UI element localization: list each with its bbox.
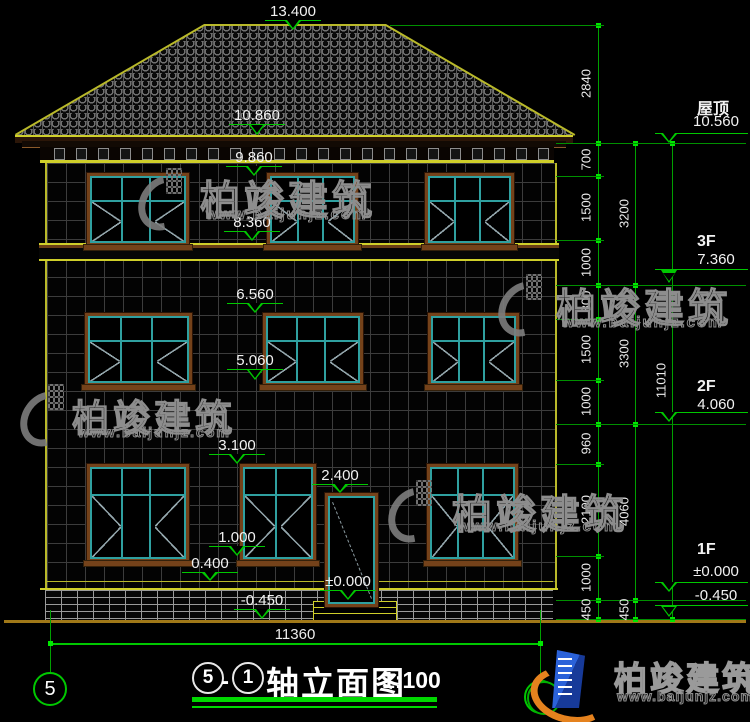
elevation-marker-triangle-icon <box>229 547 245 556</box>
window-frame <box>428 176 511 243</box>
title-axis-start-bubble: 5 <box>192 662 224 694</box>
dim-line <box>635 143 636 619</box>
elevation-marker-label: 9.860 <box>235 149 273 166</box>
casement-open-left-icon <box>90 342 120 381</box>
elevation-marker-triangle-icon <box>247 370 263 380</box>
eave-bracket-icon <box>120 148 131 160</box>
dim-label: 3200 <box>617 179 632 249</box>
drawing-scale: 1:100 <box>382 667 441 694</box>
floor-marker-triangle-icon <box>661 413 677 422</box>
window-sill <box>424 384 523 391</box>
floor-label: 3F <box>697 233 716 251</box>
watermark-building-icon <box>526 274 542 300</box>
elevation-marker-label: 2.400 <box>321 467 359 484</box>
casement-open-left-icon <box>92 202 121 241</box>
window-mullion <box>149 469 151 557</box>
watermark-site: www.baijunjz.com <box>206 206 367 223</box>
roof-tiles <box>15 25 573 135</box>
eave-bracket-icon <box>186 148 197 160</box>
eave-bracket-icon <box>494 148 505 160</box>
elevation-marker-label: 6.560 <box>236 286 274 303</box>
eave-bracket-icon <box>450 148 461 160</box>
window-mullion <box>275 469 277 557</box>
title-axis-start: 5 <box>203 667 214 689</box>
watermark-site: www.baijunjz.com <box>458 518 619 535</box>
floor-elevation-value: 10.560 <box>693 113 739 130</box>
title-axis-end-bubble: 1 <box>232 662 264 694</box>
floor-label: 2F <box>697 378 716 396</box>
dim-label: 11010 <box>654 346 669 416</box>
window-sill <box>83 244 193 251</box>
eave-bracket-icon <box>362 148 373 160</box>
elevation-marker-triangle-icon <box>202 573 218 581</box>
elevation-marker-triangle-icon <box>254 610 270 619</box>
window-sill <box>423 560 522 567</box>
casement-open-left-icon <box>433 342 458 381</box>
window-mullion <box>151 318 153 381</box>
title-axis-separator: - <box>221 668 229 696</box>
casement-open-right-icon <box>485 202 509 241</box>
elevation-marker-label: 0.400 <box>191 555 229 572</box>
casement-open-left-icon <box>92 496 121 557</box>
floor-elevation-value: ±0.000 <box>693 563 739 580</box>
bottom-dim-label: 11360 <box>260 626 330 643</box>
window-mullion <box>324 318 326 381</box>
watermark-building-icon <box>416 480 432 506</box>
window-mullion <box>454 178 456 241</box>
eave-bracket-icon <box>406 148 417 160</box>
floor-elevation-value: 7.360 <box>697 251 735 268</box>
window-sill <box>421 244 518 251</box>
dim-label: 2840 <box>579 49 594 119</box>
window-mullion <box>479 178 481 241</box>
floor-marker-triangle-icon <box>661 583 677 592</box>
casement-open-right-icon <box>155 496 184 557</box>
floor-label: 1F <box>697 541 716 559</box>
bottom-dim-line <box>50 643 540 645</box>
floor-marker-triangle-icon <box>661 606 677 617</box>
window-sill <box>263 244 362 251</box>
eave-bracket-icon <box>384 148 395 160</box>
casement-open-right-icon <box>281 496 311 557</box>
eave-bracket-row <box>40 147 554 160</box>
axis-bubble-5-label: 5 <box>44 678 55 701</box>
window-mullion <box>296 318 298 381</box>
eave-bracket-icon <box>340 148 351 160</box>
window-sill <box>83 560 193 567</box>
dim-line <box>672 143 673 619</box>
title-underline-thin <box>192 706 437 708</box>
floor-elevation-value: 4.060 <box>697 396 735 413</box>
eave-bracket-icon <box>538 148 549 160</box>
casement-open-left-icon <box>430 202 454 241</box>
elevation-marker-label: 10.860 <box>234 107 280 124</box>
elevation-marker-triangle-icon <box>332 485 348 493</box>
window-mullion <box>120 318 122 381</box>
title-axis-end: 1 <box>243 667 254 689</box>
window-mullion <box>483 318 485 381</box>
elevation-drawing: 2840700150010008001500100096021001000450… <box>0 0 750 722</box>
dim-label: 450 <box>617 575 632 645</box>
casement-open-right-icon <box>330 342 358 381</box>
watermark-site: www.baijunjz.com <box>562 314 723 331</box>
eave-bracket-icon <box>296 148 307 160</box>
window-frame <box>88 316 189 383</box>
dim-tick <box>48 641 53 646</box>
eave-bracket-icon <box>98 148 109 160</box>
dim-label: 960 <box>579 409 594 479</box>
window-frame <box>266 316 360 383</box>
casement-open-right-icon <box>489 342 514 381</box>
window-mullion <box>121 178 123 241</box>
eave-bracket-icon <box>428 148 439 160</box>
eave-bracket-icon <box>54 148 65 160</box>
window-mullion <box>458 318 460 381</box>
axis-bubble-5: 5 <box>33 672 67 706</box>
elevation-marker-label: 1.000 <box>218 529 256 546</box>
extension-line <box>390 25 604 26</box>
window-sill <box>236 560 320 567</box>
elevation-marker-triangle-icon <box>229 455 245 464</box>
watermark-site: www.baijunjz.com <box>78 424 231 440</box>
window <box>87 464 189 562</box>
eave-bracket-icon <box>274 148 285 160</box>
window-mullion <box>121 469 123 557</box>
dim-label: 450 <box>579 575 594 645</box>
window-sill <box>259 384 367 391</box>
title-underline-thick <box>192 697 437 702</box>
casement-open-left-icon <box>245 496 275 557</box>
elevation-marker-label: 5.060 <box>236 352 274 369</box>
floor-marker-triangle-icon <box>661 134 677 143</box>
elevation-marker-triangle-icon <box>247 304 263 313</box>
casement-open-right-icon <box>157 342 187 381</box>
elevation-marker-triangle-icon <box>285 21 301 30</box>
dim-tick <box>538 641 543 646</box>
eave-bracket-icon <box>516 148 527 160</box>
elevation-marker-triangle-icon <box>340 591 356 600</box>
floor-elevation-value: -0.450 <box>695 587 738 604</box>
eave-bracket-icon <box>164 148 175 160</box>
eave-bracket-icon <box>76 148 87 160</box>
window <box>263 313 363 386</box>
eave-bracket-icon <box>142 148 153 160</box>
window <box>85 313 192 386</box>
eave-bracket-icon <box>208 148 219 160</box>
elevation-marker-label: ±0.000 <box>325 573 371 590</box>
plinth-brick <box>45 590 553 620</box>
eave-bracket-icon <box>472 148 483 160</box>
window <box>240 464 316 562</box>
elevation-marker-label: 13.400 <box>270 3 316 20</box>
window <box>425 173 514 246</box>
elevation-marker-triangle-icon <box>249 125 265 135</box>
brand-site: www.baijunjz.com <box>617 688 750 704</box>
elevation-marker-triangle-icon <box>244 232 260 241</box>
eave-bracket-icon <box>318 148 329 160</box>
plinth-line-upper <box>45 581 553 582</box>
window-frame <box>90 467 186 559</box>
watermark-building-icon <box>166 168 182 194</box>
elevation-marker-label: -0.450 <box>241 592 284 609</box>
watermark-building-icon <box>48 384 64 410</box>
